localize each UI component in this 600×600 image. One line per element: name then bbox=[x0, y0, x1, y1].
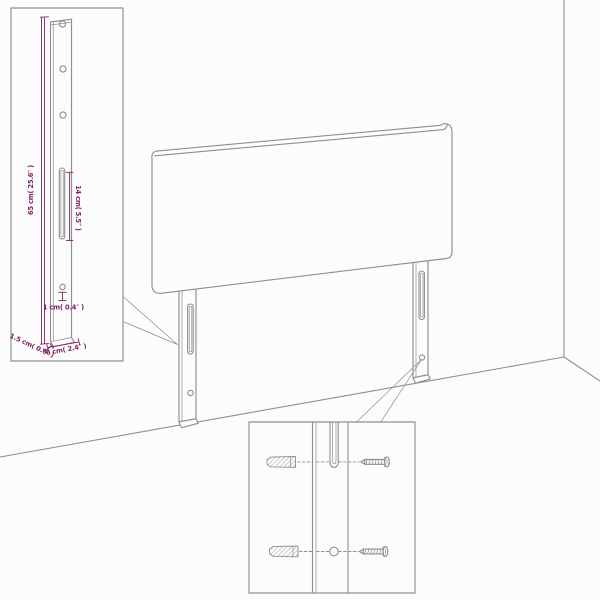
right-mounting-leg bbox=[413, 258, 430, 383]
wall-plug-icon bbox=[267, 457, 296, 468]
leg-inset-leader-lines bbox=[123, 297, 178, 345]
hardware-inset-border bbox=[249, 422, 415, 593]
hole-offset-label: 1 cm( 0.4″ ) bbox=[43, 304, 84, 312]
slot-dimension-label: 14 cm( 5.5″ ) bbox=[74, 185, 82, 231]
height-dimension-label: 65 cm( 25.6″ ) bbox=[27, 165, 35, 215]
left-mounting-leg bbox=[179, 286, 198, 428]
diagram-canvas: 65 cm( 25.6″ ) 14 cm( 5.5″ ) 1 cm( 0.4″ … bbox=[0, 0, 600, 600]
hardware-detail-inset bbox=[249, 422, 415, 593]
headboard bbox=[152, 124, 452, 294]
zoom-leader-lines bbox=[123, 297, 422, 422]
wall-plug-icon bbox=[270, 546, 299, 557]
leg-detail-inset: 65 cm( 25.6″ ) 14 cm( 5.5″ ) 1 cm( 0.4″ … bbox=[8, 8, 123, 361]
headboard-panel bbox=[152, 124, 452, 294]
headboard-assembly-diagram: 65 cm( 25.6″ ) 14 cm( 5.5″ ) 1 cm( 0.4″ … bbox=[0, 0, 600, 600]
floor-line-right bbox=[564, 357, 600, 381]
hardware-inset-leader-lines bbox=[357, 360, 422, 422]
